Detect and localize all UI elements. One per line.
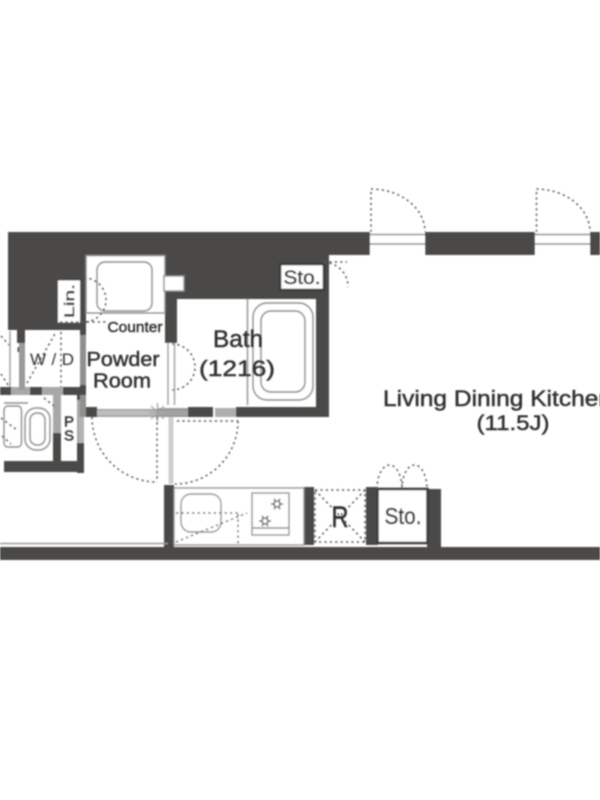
svg-text:Room: Room bbox=[93, 371, 151, 393]
svg-text:Bath: Bath bbox=[213, 326, 263, 353]
svg-text:Lin.: Lin. bbox=[61, 284, 77, 318]
svg-text:Sto.: Sto. bbox=[284, 268, 321, 289]
svg-text:Counter: Counter bbox=[108, 319, 163, 336]
svg-text:Powder: Powder bbox=[87, 349, 160, 371]
svg-text:Sto.: Sto. bbox=[385, 503, 422, 529]
svg-text:S: S bbox=[64, 428, 74, 445]
svg-text:(11.5J): (11.5J) bbox=[477, 412, 550, 435]
svg-text:W/D: W/D bbox=[30, 350, 74, 369]
svg-text:Living Dining Kitchen: Living Dining Kitchen bbox=[383, 386, 600, 411]
svg-text:R: R bbox=[332, 501, 349, 534]
svg-text:(1216): (1216) bbox=[199, 356, 275, 381]
